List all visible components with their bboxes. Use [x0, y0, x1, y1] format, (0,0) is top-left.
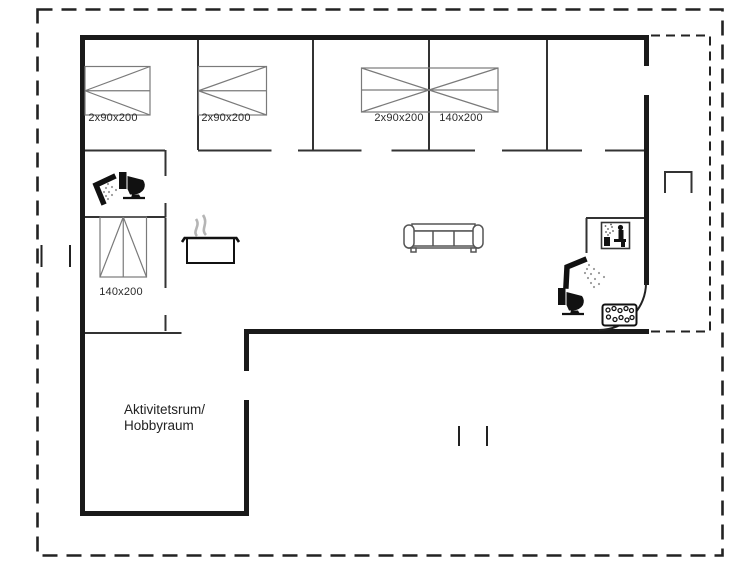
bed-size-label-1: 2x90x200 — [88, 112, 137, 124]
sofa-icon — [404, 224, 483, 252]
terrace-outline — [651, 36, 710, 332]
cooking-pot-icon — [182, 215, 239, 263]
activity-room-label-line1: Aktivitetsrum/ — [124, 402, 205, 418]
terrace-bench-icon — [665, 172, 692, 193]
floorplan-drawing — [0, 0, 755, 566]
boundary-tick — [42, 245, 488, 446]
bed-double-2 — [199, 67, 267, 116]
shower-icon — [566, 260, 605, 288]
bed-140-vertical — [100, 217, 147, 277]
property-boundary — [38, 10, 723, 556]
steam-icon — [195, 215, 206, 236]
bed-size-label-5: 140x200 — [99, 286, 143, 298]
whirlpool-tub-icon — [603, 305, 637, 326]
bed-double-1 — [85, 67, 150, 116]
toilet-icon — [119, 172, 145, 198]
floorplan-canvas: 2x90x200 2x90x200 2x90x200 140x200 140x2… — [0, 0, 755, 566]
toilet-icon — [558, 288, 584, 314]
bed-size-label-3: 2x90x200 — [374, 112, 423, 124]
bed-size-label-2: 2x90x200 — [201, 112, 250, 124]
bed-size-label-4: 140x200 — [439, 112, 483, 124]
activity-room-label-line2: Hobbyraum — [124, 418, 205, 434]
activity-room-label: Aktivitetsrum/ Hobbyraum — [124, 402, 205, 433]
shower-icon — [96, 177, 117, 202]
sauna-icon — [602, 223, 630, 249]
